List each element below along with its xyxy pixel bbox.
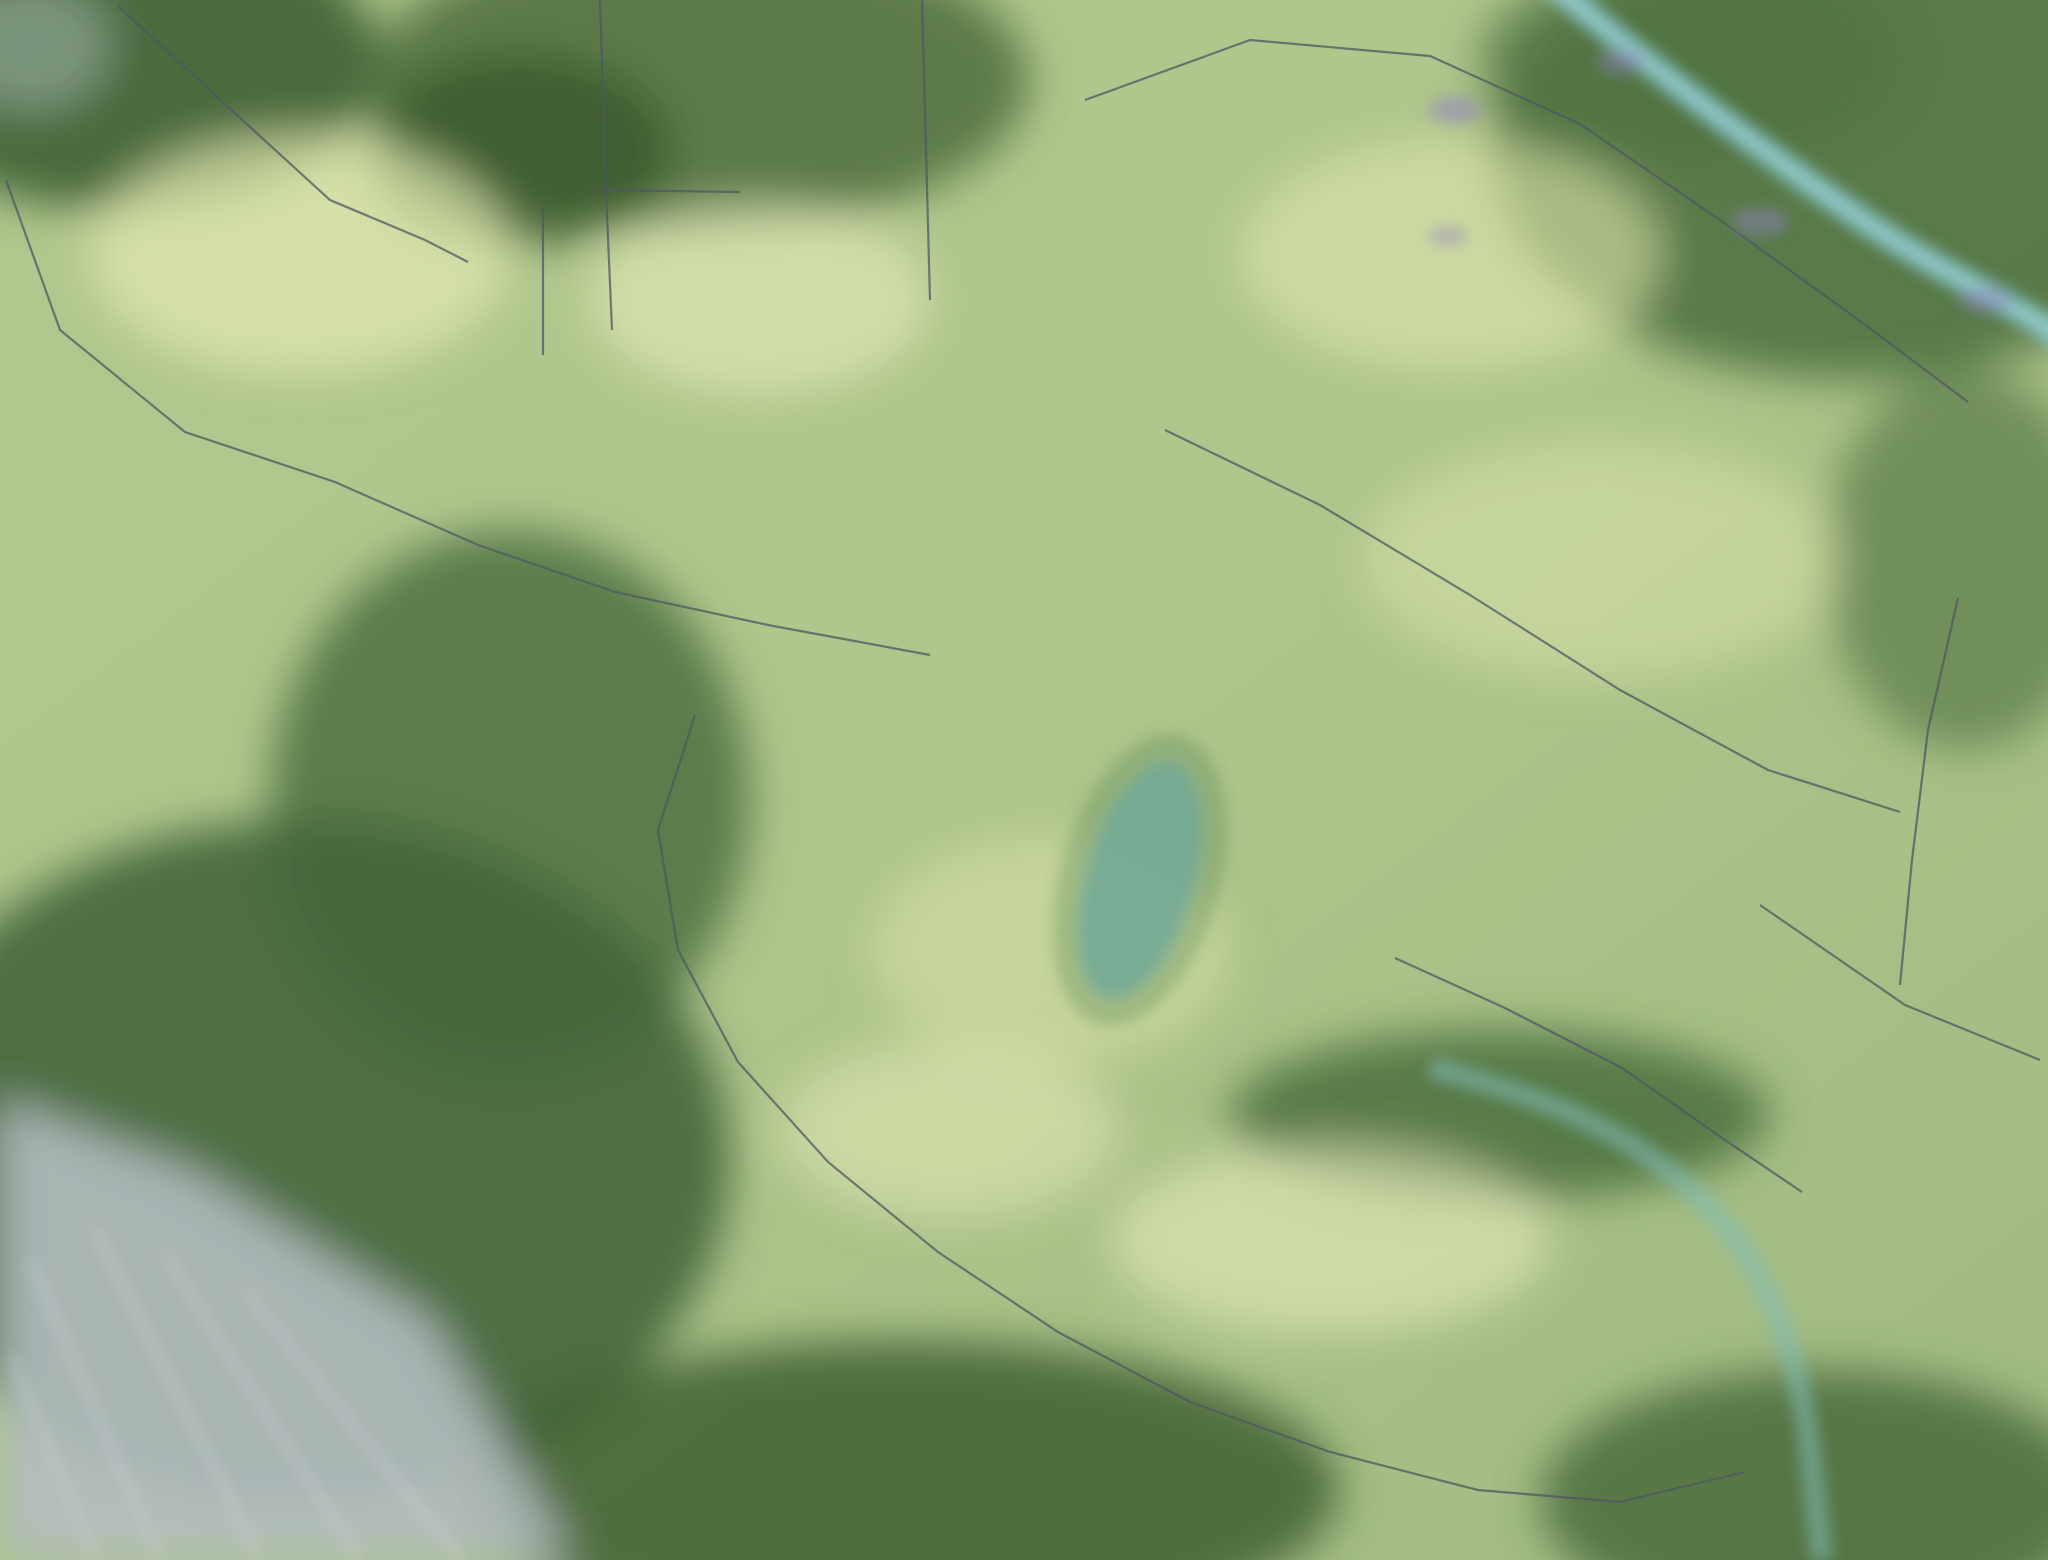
wetland-patch [1429, 96, 1481, 124]
plat-map-stage [0, 0, 2048, 1560]
map-canvas [0, 0, 2048, 1560]
wetland-patch [1596, 49, 1644, 75]
wetland-patch [1732, 208, 1788, 236]
wetland-patch [1959, 287, 2011, 313]
wetland-patch [1428, 225, 1468, 247]
